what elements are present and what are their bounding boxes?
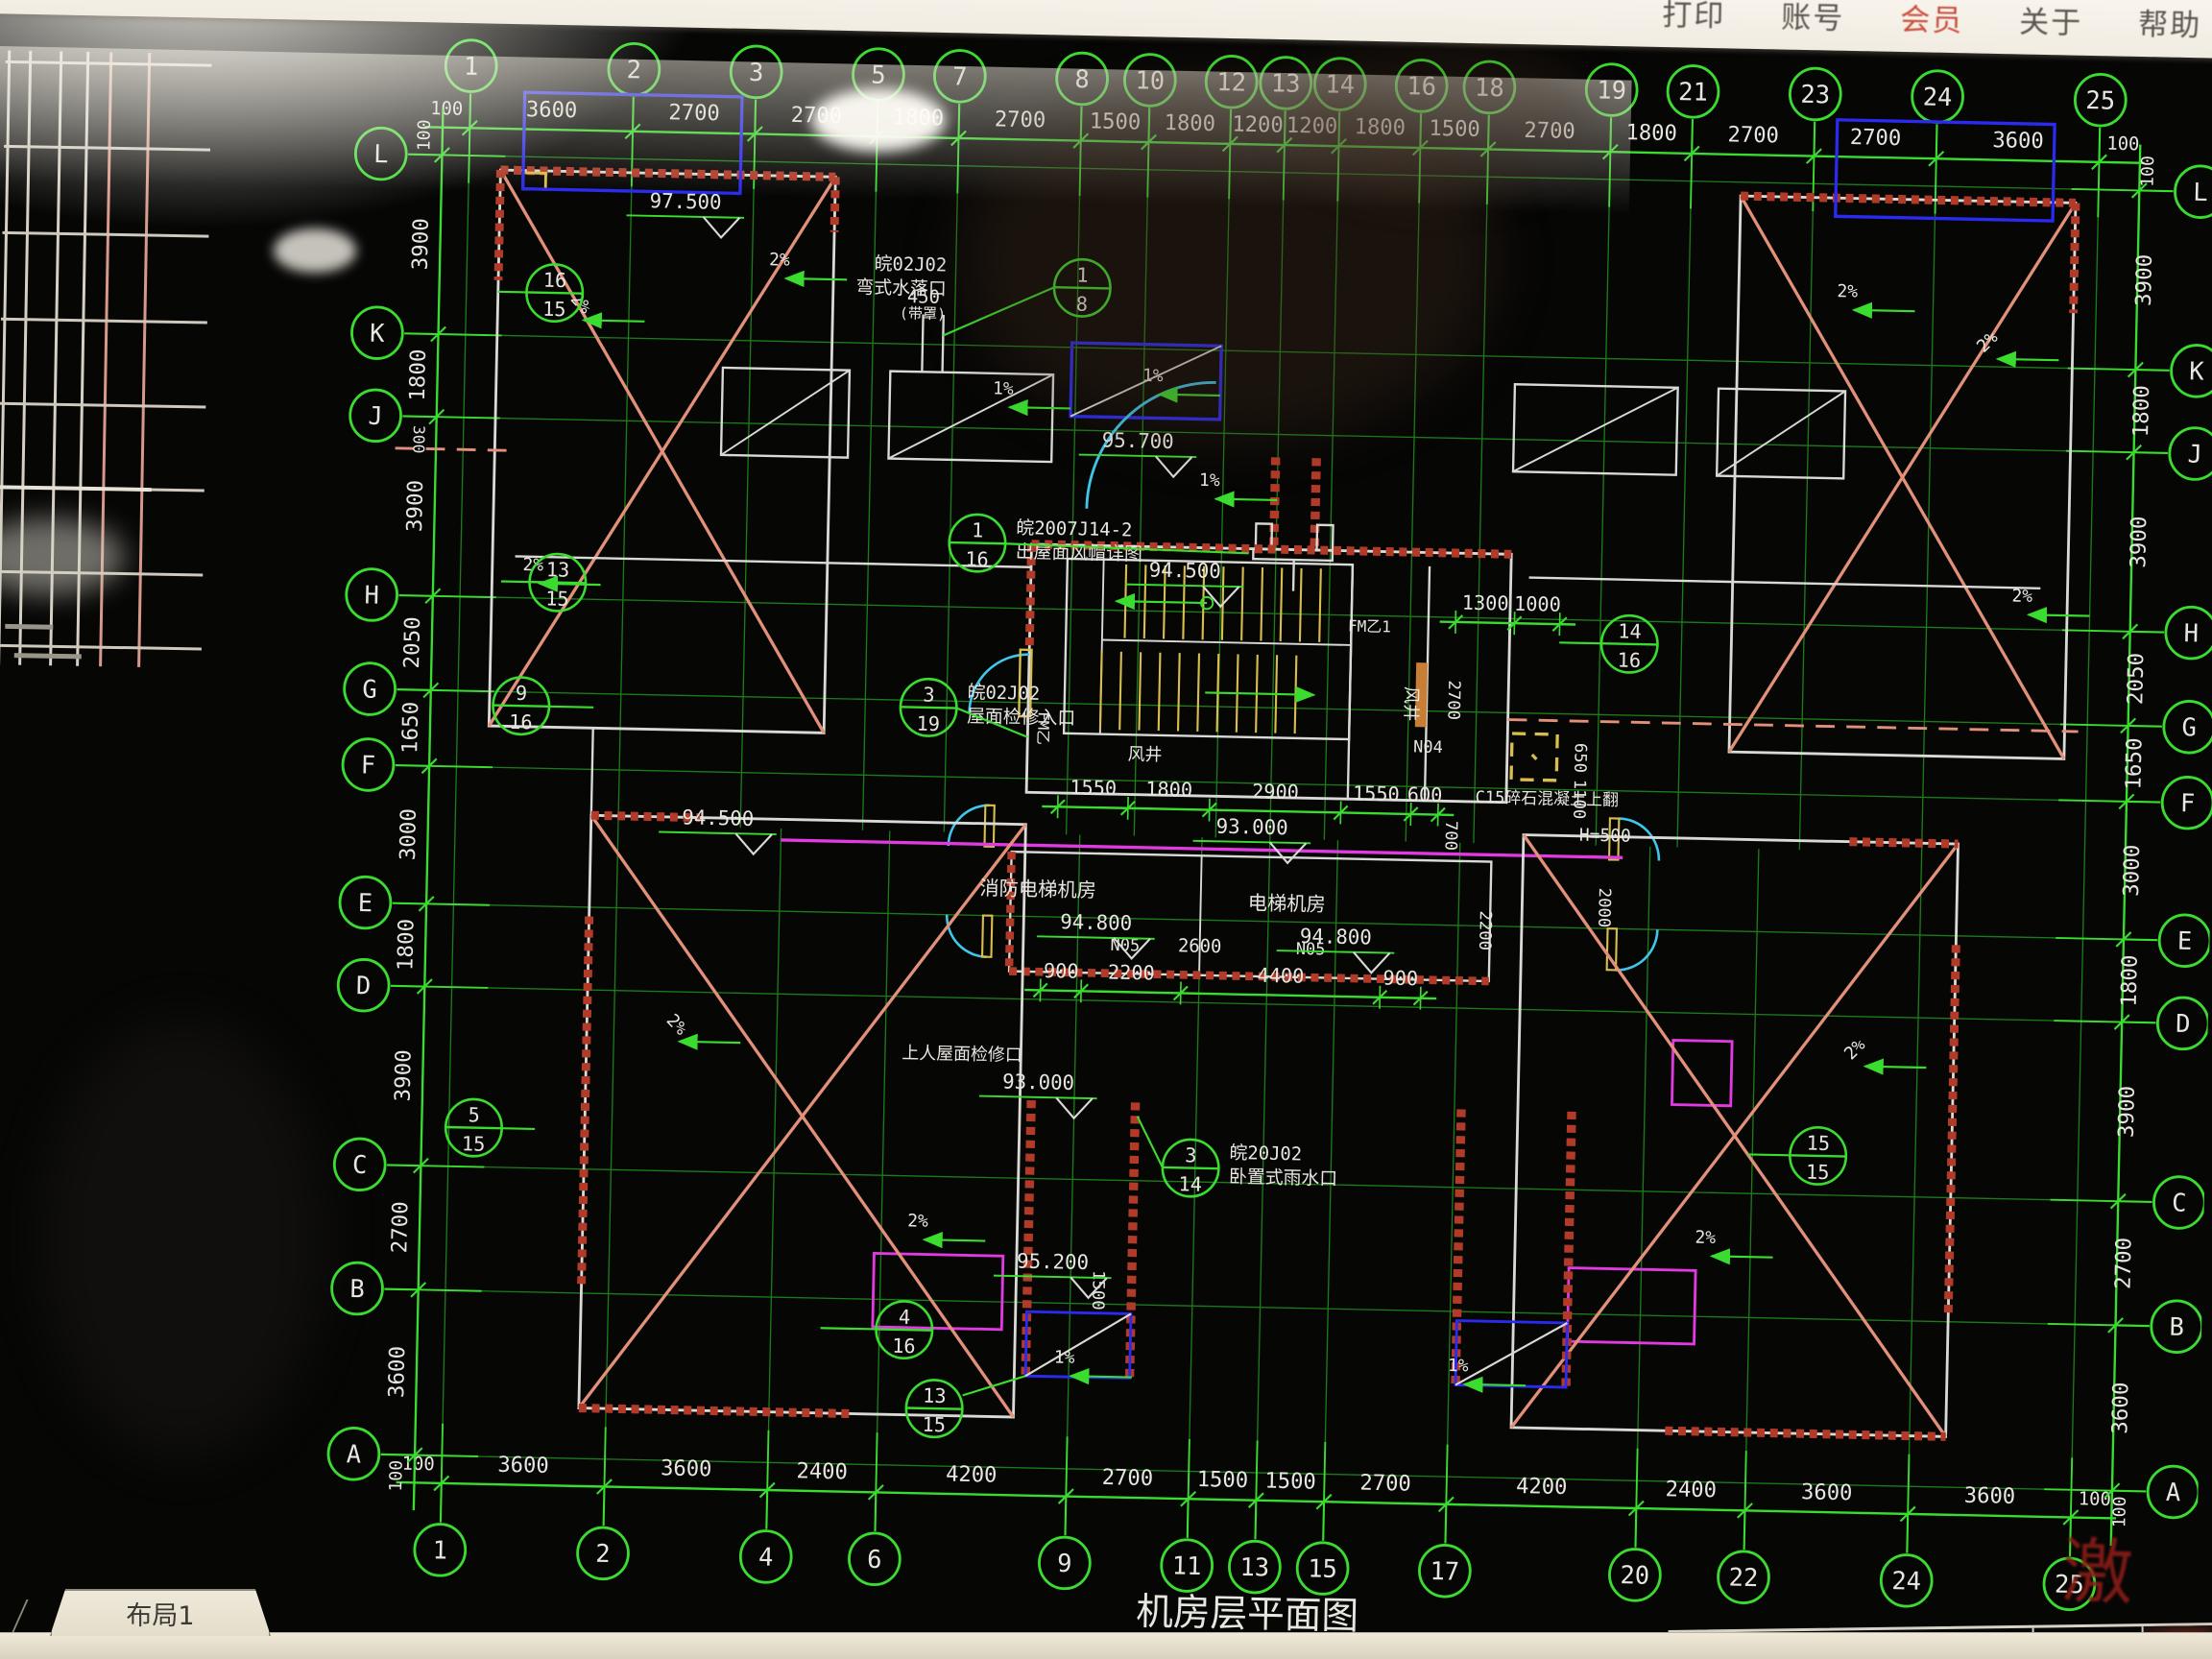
cad-line: [579, 815, 1025, 1417]
cad-line: [419, 1289, 482, 1290]
level-text: 93.000: [1002, 1070, 1074, 1094]
slope-label: 1%: [993, 378, 1014, 399]
cad-line: [766, 1490, 767, 1529]
cad-line: [2056, 938, 2124, 939]
cad-line: [431, 690, 2128, 726]
dim-label: 1800: [2117, 954, 2143, 1007]
dim-label: 2700: [2111, 1238, 2137, 1290]
cad-line: [1854, 310, 1915, 311]
cad-line: [1998, 359, 2059, 360]
cad-line: [1748, 1154, 1791, 1155]
dim-label: 2700: [995, 107, 1046, 132]
cad-line: [1744, 1510, 1745, 1550]
dim-label: 2700: [1359, 1470, 1411, 1496]
cad-line: [1117, 601, 1207, 603]
cad-line: [591, 728, 593, 815]
menu-item-账号[interactable]: 账号: [1781, 0, 1845, 36]
detail-bubble-bottom: 15: [542, 298, 566, 322]
axis-bubble-label: H: [364, 581, 379, 611]
annotation-text: 2200: [1475, 910, 1495, 950]
cad-line: [659, 832, 777, 835]
axis-bubble-label: F: [360, 751, 375, 781]
cad-line: [404, 333, 438, 334]
cad-line: [1163, 1167, 1218, 1168]
cad-line: [431, 690, 494, 691]
cad-line: [1596, 152, 1610, 846]
annotation-text: H=500: [1579, 825, 1631, 846]
dim-label: 1800: [394, 919, 420, 972]
menu-item-会员[interactable]: 会员: [1900, 0, 1964, 39]
slope-label: 1%: [1142, 366, 1164, 387]
slope-label: 2%: [2011, 586, 2032, 607]
annotation-text: 1500: [1088, 1270, 1108, 1310]
dim-label: 1800: [405, 349, 431, 401]
cad-line: [424, 987, 488, 988]
axis-bubble-label: J: [2187, 440, 2202, 469]
watermark-text: 激: [2060, 1514, 2135, 1620]
detail-bubble-top: 15: [1806, 1131, 1830, 1155]
dim-label: 2700: [1850, 125, 1902, 151]
dim-label: 2400: [1665, 1477, 1717, 1503]
cad-line: [2116, 1325, 2150, 1326]
cad-line: [1813, 156, 1814, 211]
detail-bubble-top: 9: [516, 682, 528, 705]
axis-bubble-label: E: [2177, 927, 2193, 957]
dim-label: 1550: [1070, 776, 1117, 800]
cad-line: [1128, 797, 1129, 820]
annotation-text: N04: [1413, 737, 1443, 757]
axis-bubble-label: 8: [1074, 65, 1090, 95]
cad-line: [526, 292, 582, 293]
menu-item-关于[interactable]: 关于: [2019, 0, 2083, 41]
detail-bubble-top: 13: [546, 558, 570, 582]
cad-rect: [1026, 544, 1511, 803]
dim-label: 1800: [1354, 114, 1406, 140]
cad-line: [1488, 115, 1489, 150]
detail-bubble-bottom: 16: [892, 1334, 916, 1358]
cad-line: [408, 155, 442, 156]
axis-bubble-label: 1: [432, 1536, 447, 1566]
dim-label: 1800: [1164, 110, 1215, 136]
detail-bubble-top: 5: [468, 1103, 480, 1126]
cad-line: [1487, 149, 1488, 204]
level-text: 94.800: [1300, 925, 1372, 950]
axis-bubble-label: F: [2180, 789, 2196, 819]
axis-bubble-label: 18: [1475, 73, 1504, 103]
dim-label: 3600: [2107, 1382, 2133, 1434]
dim-label: 4200: [1516, 1474, 1568, 1500]
axis-bubble-label: K: [370, 319, 386, 349]
cad-line: [437, 417, 500, 418]
cad-line: [862, 136, 877, 830]
cad-line: [1692, 119, 1693, 154]
level-triangle: [1155, 456, 1191, 477]
dim-label: 900: [1044, 959, 1079, 983]
cad-line: [944, 138, 958, 832]
annotation-text: 上人屋面检修口: [902, 1043, 1022, 1066]
axis-bubble-label: 6: [867, 1546, 882, 1575]
axis-bubble-label: 17: [1430, 1557, 1459, 1587]
slope-label: 2%: [769, 250, 790, 271]
detail-bubble-top: 1: [1076, 263, 1089, 286]
cad-line: [498, 170, 500, 280]
cad-line: [1025, 1311, 1131, 1378]
door-arc: [1616, 928, 1657, 971]
dim-label: 2700: [387, 1201, 413, 1254]
cad-line: [1134, 142, 1148, 836]
cad-line: [2112, 1491, 2146, 1492]
cad-line: [1324, 1442, 1325, 1502]
axis-bubble-label: 3: [749, 59, 764, 88]
axis-bubble-label: G: [2181, 713, 2197, 743]
dim-label: 1200: [1286, 113, 1338, 139]
dim-label: 100: [2106, 132, 2140, 155]
cad-line: [1744, 849, 1758, 1510]
level-triangle: [703, 217, 739, 238]
cad-line: [958, 104, 959, 138]
cad-line: [2072, 189, 2140, 190]
axis-bubble-label: A: [346, 1440, 361, 1470]
dim-label: 3600: [384, 1346, 410, 1399]
cad-line: [876, 830, 889, 1492]
dim-label: 2200: [1108, 960, 1155, 984]
cad-line: [1230, 109, 1231, 144]
cad-line: [1419, 148, 1420, 203]
cad-line: [604, 825, 617, 1486]
dim-label: 3600: [1964, 1483, 2016, 1509]
cad-line: [2058, 800, 2127, 801]
cad-line: [1147, 142, 1148, 197]
cad-line: [1261, 567, 1262, 641]
cad-line: [754, 133, 755, 188]
cad-line: [2062, 630, 2130, 631]
menu-item-帮助[interactable]: 帮助: [2138, 0, 2202, 44]
cad-line: [877, 1329, 932, 1330]
axis-bubble-label: 1: [464, 52, 479, 82]
cad-line: [1065, 1497, 1066, 1536]
cad-line: [922, 314, 923, 372]
axis-bubble-label: 5: [871, 60, 886, 90]
dim-label: 100: [2138, 156, 2159, 187]
cad-line: [740, 133, 755, 828]
axis-bubble-label: 15: [1308, 1554, 1337, 1584]
callout-text: 屋面检修入口: [967, 706, 1076, 730]
cad-line: [1209, 799, 1210, 822]
menu-item-打印[interactable]: 打印: [1662, 0, 1726, 35]
axis-bubble-label: 23: [1800, 81, 1830, 110]
detail-bubble-top: 1: [972, 518, 984, 541]
axis-bubble-label: C: [352, 1151, 368, 1181]
cad-line: [1677, 154, 1692, 848]
dim-label: 2700: [1101, 1465, 1153, 1491]
cad-line: [1148, 108, 1149, 142]
cad-line: [963, 1375, 1026, 1397]
cad-line: [2084, 162, 2099, 856]
cad-line: [2071, 855, 2084, 1517]
cad-line: [1340, 801, 1341, 824]
detail-bubble-bottom: 14: [1178, 1172, 1202, 1196]
cad-line: [402, 416, 436, 417]
cad-line: [1010, 407, 1071, 408]
detail-bubble-top: 4: [899, 1306, 911, 1329]
axis-bubble-label: J: [368, 402, 383, 432]
cad-line: [1338, 111, 1339, 146]
detail-bubble-bottom: 15: [462, 1132, 486, 1156]
cad-line: [426, 903, 490, 904]
axis-bubble-label: D: [356, 972, 372, 1001]
slope-label: 1%: [1054, 1347, 1075, 1368]
cad-line: [1193, 841, 1311, 844]
cad-line: [1323, 1502, 1324, 1541]
dim-label: 600: [1407, 782, 1443, 806]
cad-line: [2127, 802, 2160, 803]
slope-label: 2%: [662, 1010, 691, 1040]
layout-tab-label: 布局1: [126, 1595, 194, 1632]
annotation-text: 2000: [1594, 888, 1614, 928]
dim-label: 3000: [396, 808, 421, 861]
cad-line: [1865, 1067, 1927, 1068]
dim-label: 100: [386, 1460, 407, 1492]
cad-rect: [1568, 1268, 1696, 1344]
cad-line: [1559, 642, 1601, 643]
cad-line: [2128, 726, 2162, 727]
cad-line: [2139, 190, 2173, 191]
annotation-text: 700: [1441, 821, 1460, 852]
detail-bubble-bottom: 15: [1806, 1160, 1830, 1184]
cad-line: [875, 1492, 876, 1531]
cad-line: [1181, 981, 1182, 1004]
cad-line: [1081, 979, 1082, 1002]
axis-bubble-label: C: [2172, 1189, 2187, 1218]
cad-line: [1256, 1440, 1257, 1500]
cad-line: [1100, 651, 1102, 729]
cad-line: [1199, 855, 1202, 974]
axis-bubble-label: H: [2183, 619, 2199, 649]
annotation-text: 650: [1570, 743, 1589, 774]
level-text: 97.500: [649, 189, 721, 214]
cad-line: [1790, 1155, 1845, 1156]
dim-label: 3900: [408, 218, 434, 271]
dim-label: 3600: [661, 1455, 712, 1481]
dim-label: 1800: [1625, 120, 1677, 146]
cad-line: [821, 1328, 877, 1329]
cad-line: [1474, 149, 1488, 843]
cad-line: [1936, 124, 1937, 158]
cad-line: [1054, 287, 1110, 288]
cad-line: [755, 100, 756, 134]
cad-line: [469, 93, 470, 128]
cad-line: [901, 707, 956, 708]
axis-bubble-label: 14: [1325, 70, 1355, 100]
cad-line: [397, 689, 430, 690]
cad-line: [1406, 148, 1420, 842]
axis-bubble-label: L: [373, 140, 389, 170]
cad-line: [1070, 1376, 1132, 1377]
cad-line: [1300, 568, 1302, 642]
cad-rect: [984, 805, 994, 847]
cad-line: [1119, 652, 1121, 730]
callout-text: 皖02J02: [967, 682, 1040, 705]
axis-bubble-label: D: [2176, 1010, 2191, 1040]
dim-label: 2400: [796, 1458, 848, 1484]
cad-line: [1445, 1504, 1446, 1544]
cad-line: [1229, 144, 1230, 199]
cad-line: [1744, 1451, 1745, 1510]
cad-line: [1324, 146, 1338, 840]
dim-label: 1800: [893, 105, 945, 131]
cad-line: [381, 1455, 415, 1455]
cad-line: [1601, 643, 1657, 644]
axis-bubble-label: L: [2193, 179, 2208, 208]
cad-line: [439, 334, 2136, 370]
dim-label: 1500: [1429, 116, 1480, 142]
cad-line: [1922, 158, 1936, 853]
cad-line: [441, 1483, 442, 1523]
cad-line: [1159, 395, 1220, 396]
cad-line: [2099, 128, 2100, 162]
annotation-text: 风井: [1127, 744, 1162, 765]
detail-bubble-bottom: 15: [545, 587, 569, 611]
annotation-text: 2700: [1443, 680, 1463, 720]
axis-bubble-label: 2: [626, 56, 641, 85]
axis-bubble-label: A: [2166, 1479, 2181, 1508]
cad-line: [1440, 622, 1575, 625]
cad-line: [387, 1165, 421, 1166]
cad-line: [626, 215, 744, 218]
cad-line: [1080, 141, 1081, 196]
annotation-text: FM乙1: [1348, 616, 1391, 636]
axis-bubble-label: 12: [1216, 68, 1246, 98]
cad-line: [1159, 653, 1161, 731]
axis-bubble-label: E: [357, 889, 373, 919]
cad-line: [433, 596, 496, 597]
axis-bubble-label: 4: [758, 1543, 774, 1573]
cad-line: [1532, 755, 1537, 759]
cad-rect: [873, 1253, 1003, 1329]
cad-line: [398, 595, 432, 596]
layout-tab[interactable]: 布局1: [50, 1589, 271, 1636]
axis-bubble-label: G: [362, 675, 377, 705]
cad-line: [1609, 152, 1610, 206]
cad-line: [633, 97, 634, 132]
drawing-viewport: 1235781012131416181921232425360027002700…: [0, 0, 2212, 1659]
cad-line: [1255, 1501, 1256, 1540]
cad-line: [445, 1127, 501, 1128]
cad-line: [1455, 611, 1456, 634]
slope-label: 2%: [1837, 281, 1858, 302]
cad-line: [2054, 1021, 2122, 1022]
cad-line: [1216, 499, 1278, 500]
detail-bubble-top: 14: [1618, 619, 1642, 643]
dim-label: 2700: [790, 103, 842, 129]
dim-label: 1650: [397, 702, 423, 755]
axis-bubble-label: K: [2189, 357, 2205, 387]
dim-label: 2900: [1252, 780, 1299, 804]
annotation-text: C15碎石混凝土上翻: [1475, 788, 1619, 810]
cad-line: [1380, 986, 1381, 1009]
cad-line: [1337, 146, 1338, 201]
detail-bubble-bottom: 16: [509, 710, 533, 734]
cad-line: [1178, 653, 1180, 731]
annotation-text: 风井: [1401, 686, 1422, 722]
dim-label: 3900: [2131, 254, 2157, 307]
dim-label: 3000: [2119, 844, 2145, 897]
cad-line: [501, 582, 530, 583]
cad-line: [618, 132, 633, 826]
dim-label: 1500: [1264, 1468, 1316, 1494]
cad-line: [2029, 614, 2090, 615]
cad-line: [1188, 1499, 1189, 1538]
cad-line: [876, 1432, 877, 1492]
annotation-text: 300: [409, 425, 427, 454]
cad-line: [957, 138, 958, 193]
cad-line: [439, 334, 502, 335]
cad-line: [878, 102, 878, 136]
axis-bubble-label: 13: [1239, 1553, 1269, 1583]
cad-line: [2071, 1457, 2072, 1517]
cad-line: [1799, 156, 1814, 851]
slope-label: 2%: [907, 1211, 928, 1232]
cad-rect: [523, 173, 546, 189]
dim-label: 1500: [1090, 108, 1142, 134]
level-triangle: [1269, 842, 1306, 863]
cad-line: [1712, 1256, 1773, 1257]
cad-line: [943, 315, 944, 373]
cad-line: [1635, 1508, 1636, 1548]
cad-line: [1348, 565, 1353, 799]
callout-text: (带罩): [900, 304, 947, 323]
level-text: 94.500: [682, 805, 754, 830]
axis-bubble-label: B: [349, 1275, 365, 1305]
detail-bubble-top: 3: [1185, 1143, 1197, 1166]
cad-canvas[interactable]: 1235781012131416181921232425360027002700…: [271, 12, 2212, 1659]
slope-label: 2%: [522, 555, 543, 576]
cad-line: [442, 1424, 443, 1483]
detail-bubble-bottom: 16: [1617, 648, 1641, 672]
dim-label: 3900: [402, 480, 428, 533]
detail-bubble-bottom: 19: [916, 711, 940, 735]
detail-bubble-bottom: 16: [965, 547, 989, 571]
cad-line: [604, 1427, 605, 1486]
cad-line: [1081, 107, 1082, 141]
cad-line: [2060, 724, 2128, 725]
cad-line: [1908, 1455, 1909, 1514]
axis-bubble-label: 22: [1728, 1563, 1758, 1593]
slope-label: 2%: [1695, 1227, 1716, 1248]
cad-line: [2130, 632, 2164, 633]
detail-bubble-bottom: 8: [1076, 292, 1089, 315]
cad-line: [888, 372, 1053, 462]
cad-line: [2051, 1200, 2119, 1201]
dim-label: 100: [430, 98, 464, 120]
cad-line: [2048, 1324, 2116, 1325]
cad-line: [1277, 950, 1395, 953]
cad-line: [767, 1431, 768, 1490]
slope-label: 2%: [1840, 1035, 1869, 1065]
cad-line: [1511, 835, 1958, 1437]
cad-line: [1319, 568, 1321, 642]
dim-label: 3600: [1992, 128, 2044, 154]
dim-label: 1550: [1353, 781, 1400, 805]
axis-bubble-label: 13: [1271, 69, 1301, 99]
cad-line: [1420, 113, 1421, 148]
dim-label: 100: [2079, 1488, 2112, 1510]
cad-line: [442, 822, 455, 1483]
axis-bubble-label: 10: [1135, 66, 1165, 96]
cad-line: [1814, 122, 1815, 156]
axis-bubble-label: 11: [1172, 1551, 1202, 1581]
cad-line: [1513, 384, 1678, 474]
